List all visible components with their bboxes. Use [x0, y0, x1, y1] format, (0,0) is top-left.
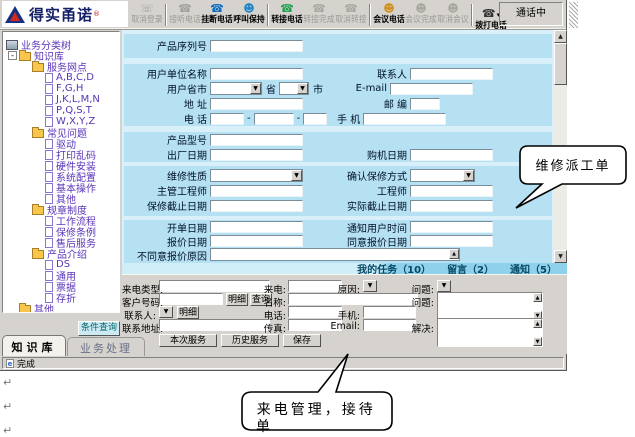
transfer-call-button[interactable]: 转接电话 — [271, 2, 303, 28]
hold-call-button[interactable]: 呼叫保持 — [233, 2, 265, 28]
cancel-transfer-icon — [344, 2, 358, 15]
question-textarea[interactable]: ▲▼ — [437, 292, 543, 321]
user-region-label: 用户省市 — [124, 81, 210, 96]
scroll-down-icon[interactable]: ▼ — [533, 337, 542, 346]
call-type-label: 来电类型: — [122, 282, 156, 296]
scroll-up-icon[interactable]: ▲ — [449, 249, 459, 259]
repair-callout-text: 维修派工单 — [535, 159, 610, 174]
mobile-input[interactable] — [363, 113, 446, 125]
logo-text: 得实甬诺 — [29, 4, 93, 25]
form-section-serial: 产品序列号 — [124, 34, 552, 58]
conference-done-icon — [415, 2, 426, 15]
postcode-label: 邮 编 — [303, 96, 410, 111]
model-input[interactable] — [210, 134, 303, 146]
folder-icon — [19, 52, 31, 61]
tree-root-icon — [6, 40, 18, 50]
cancel-login-button[interactable]: 取消登录 — [131, 2, 163, 28]
contact-address-input[interactable] — [159, 319, 270, 331]
form-section-product: 产品型号 出厂日期 购机日期 — [124, 132, 552, 162]
document-icon — [45, 95, 53, 105]
cancel-conference-icon — [447, 2, 458, 15]
city-select[interactable]: ▼ — [279, 82, 309, 95]
email-label: Email: — [330, 321, 360, 332]
reject-reason-label: 不同意报价原因 — [124, 248, 210, 263]
postcode-input[interactable] — [410, 98, 440, 110]
actual-deadline-input[interactable] — [410, 200, 493, 212]
history-service-button[interactable]: 历史服务 — [221, 334, 279, 347]
transfer-call-icon — [280, 2, 294, 15]
tree-item-service-outlets[interactable]: 服务网点 — [3, 61, 119, 72]
phone-dash: - — [294, 113, 304, 124]
tree-item-passbook[interactable]: 存折 — [3, 292, 119, 303]
conference-call-icon — [383, 2, 394, 15]
answer-call-button[interactable]: 接听电话 — [169, 2, 201, 28]
warranty-deadline-input[interactable] — [210, 200, 303, 212]
paragraph-mark-icon: ↵ — [3, 376, 12, 389]
document-icon — [45, 150, 53, 160]
answer-call-icon — [178, 2, 192, 15]
phone-area-input[interactable] — [210, 113, 244, 125]
scroll-up-icon[interactable]: ▲ — [533, 293, 542, 302]
business-category-tree: 业务分类树 知识库 服务网点 A,B,C,D F,G,H J,K,L,M,N P… — [2, 31, 120, 313]
purchase-date-input[interactable] — [410, 149, 493, 161]
name-input[interactable] — [288, 293, 418, 305]
province-select[interactable]: ▼ — [210, 82, 262, 95]
email-label: E-mail — [326, 83, 390, 94]
customer-no-input[interactable] — [159, 293, 223, 305]
unit-name-label: 用户单位名称 — [124, 66, 210, 81]
quote-date-label: 报价日期 — [124, 234, 210, 249]
scroll-up-icon[interactable]: ▲ — [554, 30, 567, 43]
address-label: 地 址 — [124, 96, 210, 111]
paragraph-mark-icon: ↵ — [3, 400, 12, 413]
phone-label: 电 话 — [124, 111, 210, 126]
contact-select[interactable]: ▼ — [159, 306, 173, 318]
document-icon — [45, 161, 53, 171]
notify-user-time-input[interactable] — [410, 221, 493, 233]
serial-number-label: 产品序列号 — [124, 38, 210, 53]
callout-bubble — [516, 146, 626, 208]
condition-query-button[interactable]: 条件查询 — [78, 321, 120, 336]
model-label: 产品型号 — [124, 132, 210, 147]
cancel-transfer-button[interactable]: 取消转接 — [335, 2, 367, 28]
ship-date-label: 出厂日期 — [124, 147, 210, 162]
customer-no-label: 客户号码: — [122, 295, 156, 309]
folder-icon — [32, 250, 44, 259]
save-button[interactable]: 保存 — [283, 334, 321, 347]
repair-type-label: 维修性质 — [124, 168, 210, 183]
tree-item-fgh[interactable]: F,G,H — [3, 83, 119, 94]
cancel-conference-button[interactable]: 取消会议 — [437, 2, 469, 28]
city-suffix: 市 — [309, 81, 326, 96]
notify-user-time-label: 通知用户时间 — [303, 220, 410, 235]
phone-dash: - — [244, 113, 254, 124]
tree-item-pqst[interactable]: P,Q,S,T — [3, 105, 119, 116]
paragraph-mark-icon: ↵ — [3, 424, 12, 437]
fax-label: 传真: — [262, 321, 286, 335]
mobile-input[interactable] — [363, 306, 416, 318]
chevron-down-icon: ▼ — [297, 83, 308, 94]
quote-date-input[interactable] — [210, 235, 303, 247]
toolbar-separator — [267, 4, 269, 26]
contact-input[interactable] — [410, 68, 493, 80]
engineer-label: 工程师 — [303, 183, 410, 198]
hangup-call-icon — [210, 2, 224, 15]
actual-deadline-label: 实际截止日期 — [303, 198, 410, 213]
chief-engineer-input[interactable] — [210, 185, 303, 197]
document-icon — [45, 282, 53, 292]
open-date-label: 开单日期 — [124, 220, 210, 235]
ship-date-input[interactable] — [210, 149, 303, 161]
form-section-user: 用户单位名称 联系人 用户省市 ▼ 省 ▼ 市 E-mail 地 址 邮 编 — [124, 64, 552, 126]
document-icon — [45, 106, 53, 116]
document-icon — [45, 84, 53, 94]
reason-select[interactable]: ▼ — [363, 280, 377, 292]
toolbar-separator — [165, 4, 167, 26]
solve-textarea[interactable]: ▲▼ — [437, 318, 543, 347]
page-icon: e — [6, 359, 14, 368]
current-service-button[interactable]: 本次服务 — [159, 334, 217, 347]
phone-ext-input[interactable] — [303, 113, 327, 125]
warranty-confirm-label: 确认保修方式 — [303, 168, 410, 183]
reject-reason-input[interactable] — [210, 248, 460, 261]
folder-icon — [32, 63, 44, 72]
question-select[interactable]: ▼ — [437, 280, 451, 292]
agree-quote-date-input[interactable] — [410, 235, 493, 247]
folder-icon — [19, 305, 31, 313]
form-section-quote: 开单日期 通知用户时间 报价日期 同意报价日期 不同意报价原因 ▲ — [124, 220, 552, 263]
contact-label: 联系人: — [122, 308, 156, 322]
tree-item-product-intro[interactable]: 产品介绍 — [3, 248, 119, 259]
repair-callout: 维修派工单 — [506, 140, 635, 215]
engineer-input[interactable] — [410, 185, 493, 197]
form-section-repair: 维修性质 ▼ 确认保修方式 ▼ 主管工程师 工程师 保修截止日期 实际截止日期 — [124, 166, 552, 216]
cti-toolbar: 得实甬诺 ® 取消登录 接听电话 挂断电话 呼叫保持 转接电话 转接完成 取消转… — [0, 0, 566, 29]
address-input[interactable] — [210, 98, 303, 110]
toolbar-separator — [471, 4, 473, 26]
warranty-deadline-label: 保修截止日期 — [124, 198, 210, 213]
contact-address-label: 联系地址: — [122, 321, 156, 335]
document-icon — [45, 172, 53, 182]
call-management-panel: 来电类型: 来电: 原因: ▼ 问题: ▼ 客户号码: 明细 查询 名称: 问题… — [122, 274, 567, 354]
tree-item-jklmn[interactable]: J,K,L,M,N — [3, 94, 119, 105]
conference-done-button[interactable]: 会议完成 — [405, 2, 437, 28]
collapse-icon[interactable] — [8, 51, 17, 60]
incoming-callout: 来电管理，接待 单 — [232, 350, 432, 434]
transfer-done-button[interactable]: 转接完成 — [303, 2, 335, 28]
email-input[interactable] — [390, 83, 473, 95]
contact-detail-button[interactable]: 明细 — [177, 306, 199, 319]
call-type-input[interactable] — [159, 280, 270, 292]
work-order-form: 产品序列号 用户单位名称 联系人 用户省市 ▼ 省 ▼ 市 E-mail 地 — [122, 30, 554, 263]
call-status-box: 通话中 — [499, 2, 563, 26]
document-icon — [45, 227, 53, 237]
unit-name-input[interactable] — [210, 68, 303, 80]
task-tab-strip: 我的任务（10） 留言（2） 通知（5） — [122, 263, 567, 274]
tab-business-process[interactable]: 业务处理 — [67, 337, 145, 356]
app-window: 得实甬诺 ® 取消登录 接听电话 挂断电话 呼叫保持 转接电话 转接完成 取消转… — [0, 0, 567, 371]
scroll-up-icon[interactable]: ▲ — [533, 319, 542, 328]
document-icon — [45, 73, 53, 83]
repair-type-select[interactable]: ▼ — [210, 169, 303, 182]
folder-icon — [32, 206, 44, 215]
document-icon — [45, 139, 53, 149]
chevron-down-icon: ▼ — [463, 170, 474, 181]
selection-hatch-strip — [569, 2, 578, 28]
toolbar-separator — [369, 4, 371, 26]
folder-icon — [32, 129, 44, 138]
logo-triangle-icon — [5, 6, 25, 23]
tab-knowledge-base[interactable]: 知识库 — [2, 335, 66, 356]
scrollbar-thumb[interactable] — [554, 43, 567, 85]
customer-detail-button[interactable]: 明细 — [226, 293, 248, 306]
chevron-down-icon: ▼ — [291, 170, 302, 181]
status-text: 完成 — [17, 357, 35, 370]
transfer-done-icon — [312, 2, 326, 15]
toolbar-buttons: 取消登录 接听电话 挂断电话 呼叫保持 转接电话 转接完成 取消转接 会议电话 … — [131, 1, 507, 28]
open-date-input[interactable] — [210, 221, 303, 233]
document-icon — [45, 216, 53, 226]
serial-number-input[interactable] — [210, 40, 303, 52]
contact-label: 联系人 — [303, 66, 410, 81]
agree-quote-date-label: 同意报价日期 — [303, 234, 410, 249]
purchase-date-label: 购机日期 — [303, 147, 410, 162]
registered-mark: ® — [93, 10, 100, 18]
conference-call-button[interactable]: 会议电话 — [373, 2, 405, 28]
dial-call-icon — [482, 7, 496, 20]
solve-label: 解决: — [406, 321, 434, 335]
name-label: 名称: — [262, 295, 286, 309]
document-icon — [45, 271, 53, 281]
province-suffix: 省 — [262, 81, 279, 96]
app-logo: 得实甬诺 ® — [2, 1, 128, 27]
mobile-label: 手 机 — [327, 111, 363, 126]
document-icon — [45, 260, 53, 270]
cancel-login-icon — [140, 2, 154, 15]
document-icon — [45, 183, 53, 193]
chief-engineer-label: 主管工程师 — [124, 183, 210, 198]
warranty-confirm-select[interactable]: ▼ — [410, 169, 475, 182]
hangup-call-button[interactable]: 挂断电话 — [201, 2, 233, 28]
scroll-down-icon[interactable]: ▼ — [554, 250, 567, 263]
chevron-down-icon: ▼ — [250, 83, 261, 94]
phone-number-input[interactable] — [254, 113, 294, 125]
tree-item-abcd[interactable]: A,B,C,D — [3, 72, 119, 83]
hold-call-icon — [243, 2, 254, 15]
